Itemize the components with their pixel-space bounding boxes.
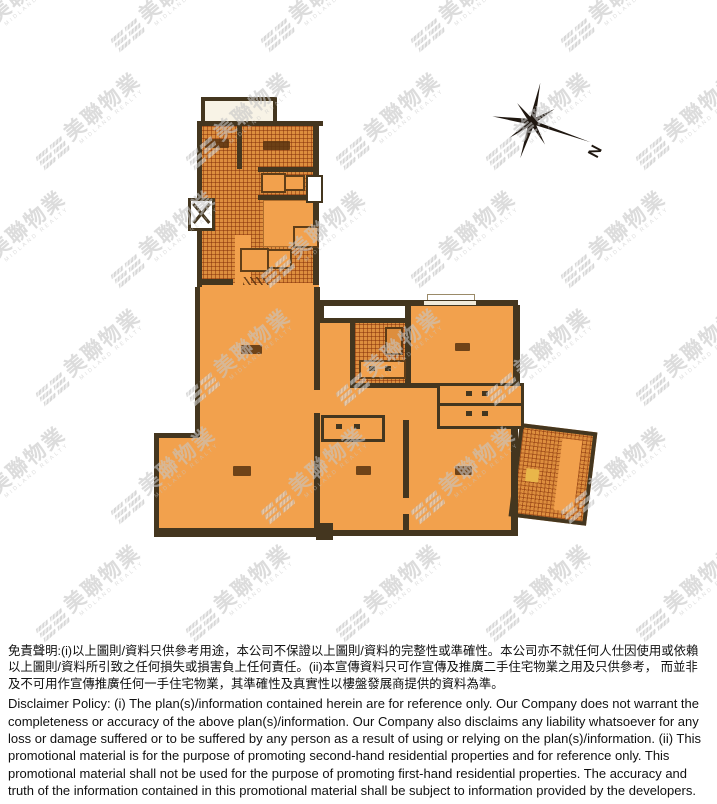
room-label-smudge xyxy=(263,141,290,150)
wall-segment xyxy=(195,287,200,437)
door-swing-marks xyxy=(243,277,269,285)
wall-segment xyxy=(403,420,409,498)
wardrobe-handle xyxy=(482,391,488,396)
wall-segment xyxy=(328,530,518,536)
wardrobe-handle xyxy=(336,424,342,429)
wall-segment xyxy=(319,300,518,306)
fixture-mark xyxy=(369,366,375,371)
wardrobe-handle xyxy=(466,411,472,416)
wardrobe xyxy=(437,403,524,429)
wall-segment xyxy=(154,528,328,537)
disclaimer-english: Disclaimer Policy: (i) The plan(s)/infor… xyxy=(8,695,710,799)
wall-segment xyxy=(154,433,199,438)
wall-segment xyxy=(403,514,409,532)
wall-segment xyxy=(405,383,437,388)
wardrobe-handle xyxy=(466,391,472,396)
living-area-lower xyxy=(159,437,319,533)
wall-segment xyxy=(511,420,518,532)
disclaimer-block: 免責聲明:(i)以上圖則/資料只供參考用途，本公司不保證以上圖則/資料的完整性或… xyxy=(8,643,710,800)
balcony-top xyxy=(203,100,275,123)
floorplan-page: N 美聯物業 MIDLAND REALTY xyxy=(0,0,717,804)
wall-segment xyxy=(273,97,277,123)
wardrobe-handle xyxy=(482,411,488,416)
wardrobe xyxy=(321,415,385,442)
utility-balcony-strip xyxy=(554,438,583,512)
utility-balcony xyxy=(509,423,598,526)
utility-balcony-box xyxy=(525,468,539,482)
compass-needle-north xyxy=(531,120,590,142)
room-label-smudge xyxy=(455,466,472,475)
room-label-smudge xyxy=(241,345,262,354)
toilet xyxy=(385,327,403,355)
wall-segment xyxy=(258,167,319,172)
small-bath-fixture xyxy=(261,173,286,193)
kitchen-appliance xyxy=(267,249,292,269)
wall-segment xyxy=(237,123,242,169)
kitchen-appliance xyxy=(240,248,269,272)
wall-segment xyxy=(319,318,411,323)
wall-segment xyxy=(350,383,411,388)
bath-sink-counter xyxy=(359,360,406,379)
wall-segment xyxy=(201,97,277,101)
wardrobe-handle xyxy=(354,424,360,429)
compass-north-label: N xyxy=(584,142,604,160)
wall-segment xyxy=(154,433,159,533)
kitchen-appliance xyxy=(293,226,319,248)
wall-segment xyxy=(201,97,205,123)
compass-rose: N xyxy=(470,72,610,164)
wall-segment xyxy=(314,413,320,532)
small-bath-fixture xyxy=(284,175,305,191)
lightwell-x-box xyxy=(188,198,215,231)
room-label-smudge xyxy=(205,139,229,148)
fixture-mark xyxy=(385,366,391,371)
room-label-smudge xyxy=(455,343,470,351)
room-label-smudge xyxy=(356,466,371,475)
living-dining-area xyxy=(199,283,319,441)
wall-segment xyxy=(314,287,320,390)
wall-segment xyxy=(197,121,323,126)
kitchen-door xyxy=(306,175,323,203)
wall-segment xyxy=(199,279,233,285)
compass-center xyxy=(527,117,538,128)
room-label-smudge xyxy=(233,466,251,476)
wall-segment xyxy=(350,322,355,388)
disclaimer-chinese: 免責聲明:(i)以上圖則/資料只供參考用途，本公司不保證以上圖則/資料的完整性或… xyxy=(8,643,710,692)
window-gap xyxy=(424,301,476,305)
